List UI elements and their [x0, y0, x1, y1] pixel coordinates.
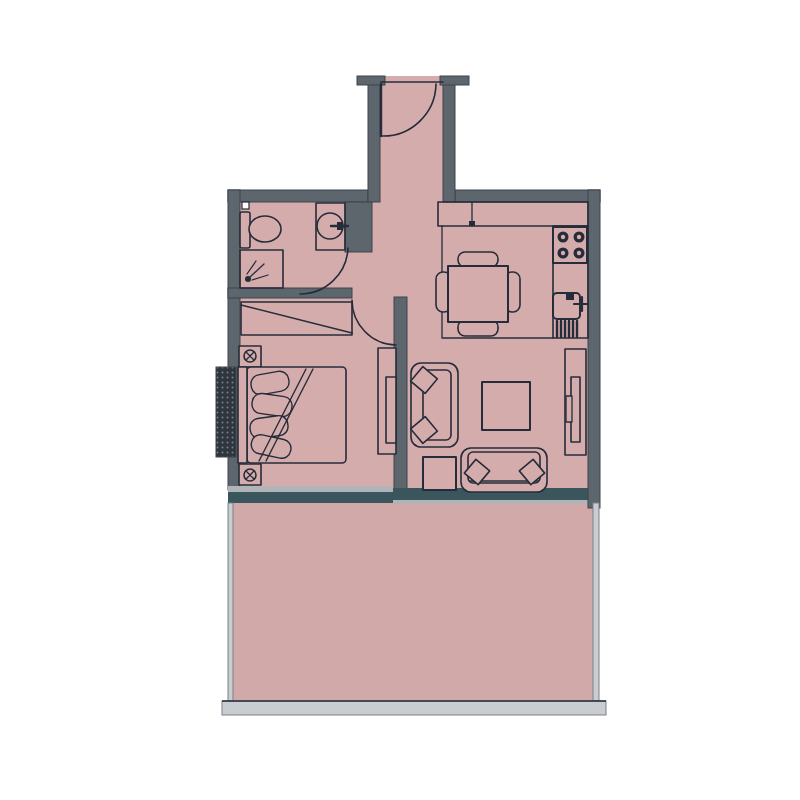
ac-unit [216, 367, 236, 457]
dining-table [448, 266, 508, 322]
chair-top [458, 252, 498, 267]
loveseat [461, 448, 547, 492]
nightstand-bottom [239, 464, 261, 485]
entry-corridor-wall-right [443, 80, 455, 202]
top-wall-right [455, 190, 600, 202]
coffee-table [482, 382, 530, 430]
window-wall-left-glass [228, 492, 393, 503]
window-wall-right-frame [393, 500, 600, 504]
window-wall-left-frame [228, 486, 393, 492]
tv-unit [565, 349, 586, 455]
outer-wall-right [588, 190, 600, 508]
bedroom-top-wall [228, 288, 352, 298]
entry-corridor-wall-left [368, 80, 380, 202]
side-table [423, 457, 456, 490]
sink-faucet-base [566, 293, 574, 300]
balcony-floor [232, 503, 593, 701]
balcony-railing-bottom [222, 701, 606, 715]
tv-bracket [566, 396, 572, 422]
entry-jamb-right [440, 76, 469, 85]
bedroom-tv [386, 377, 396, 443]
flush-button [242, 202, 249, 209]
toilet-bowl [249, 216, 281, 242]
counter-corner-detail [469, 221, 475, 226]
bedroom-tv-dresser [378, 348, 396, 454]
headboard [238, 367, 247, 463]
floor-plan [0, 0, 800, 800]
floor-plan-canvas [0, 0, 800, 800]
sofa-vertical [411, 363, 458, 447]
balcony-railing-left [228, 503, 233, 701]
top-wall-left [228, 190, 368, 202]
bathroom-niche-wall [345, 202, 372, 252]
entrance-hall-floor [380, 76, 443, 202]
nightstand-top [239, 346, 261, 367]
double-bed [238, 367, 346, 463]
balcony-railing-right [593, 503, 599, 701]
stove [553, 227, 587, 263]
